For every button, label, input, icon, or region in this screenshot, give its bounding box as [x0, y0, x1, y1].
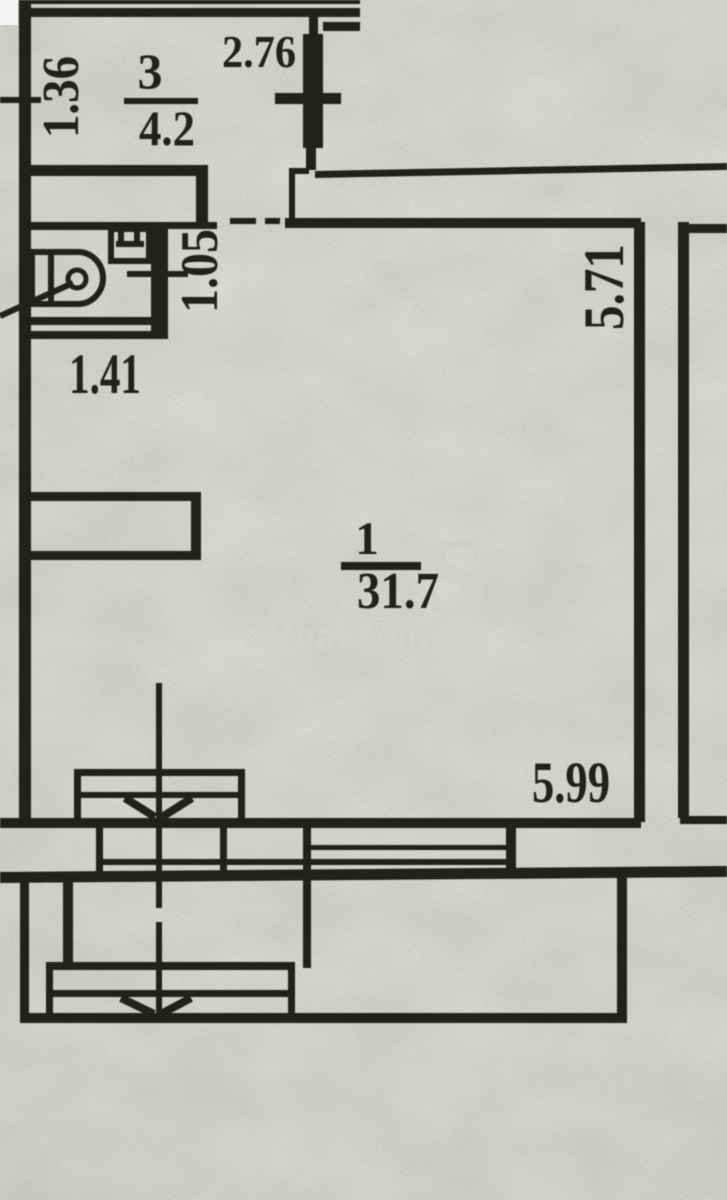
svg-text:1.36: 1.36 [33, 56, 90, 138]
svg-text:2.76: 2.76 [222, 26, 296, 77]
svg-text:5.99: 5.99 [532, 750, 610, 815]
svg-text:3: 3 [138, 43, 163, 99]
svg-text:31.7: 31.7 [357, 563, 439, 620]
svg-text:1.41: 1.41 [69, 343, 141, 406]
svg-text:4.2: 4.2 [139, 100, 195, 156]
svg-text:1.05: 1.05 [171, 229, 229, 313]
svg-text:5.71: 5.71 [573, 244, 636, 330]
svg-text:1: 1 [355, 513, 379, 565]
